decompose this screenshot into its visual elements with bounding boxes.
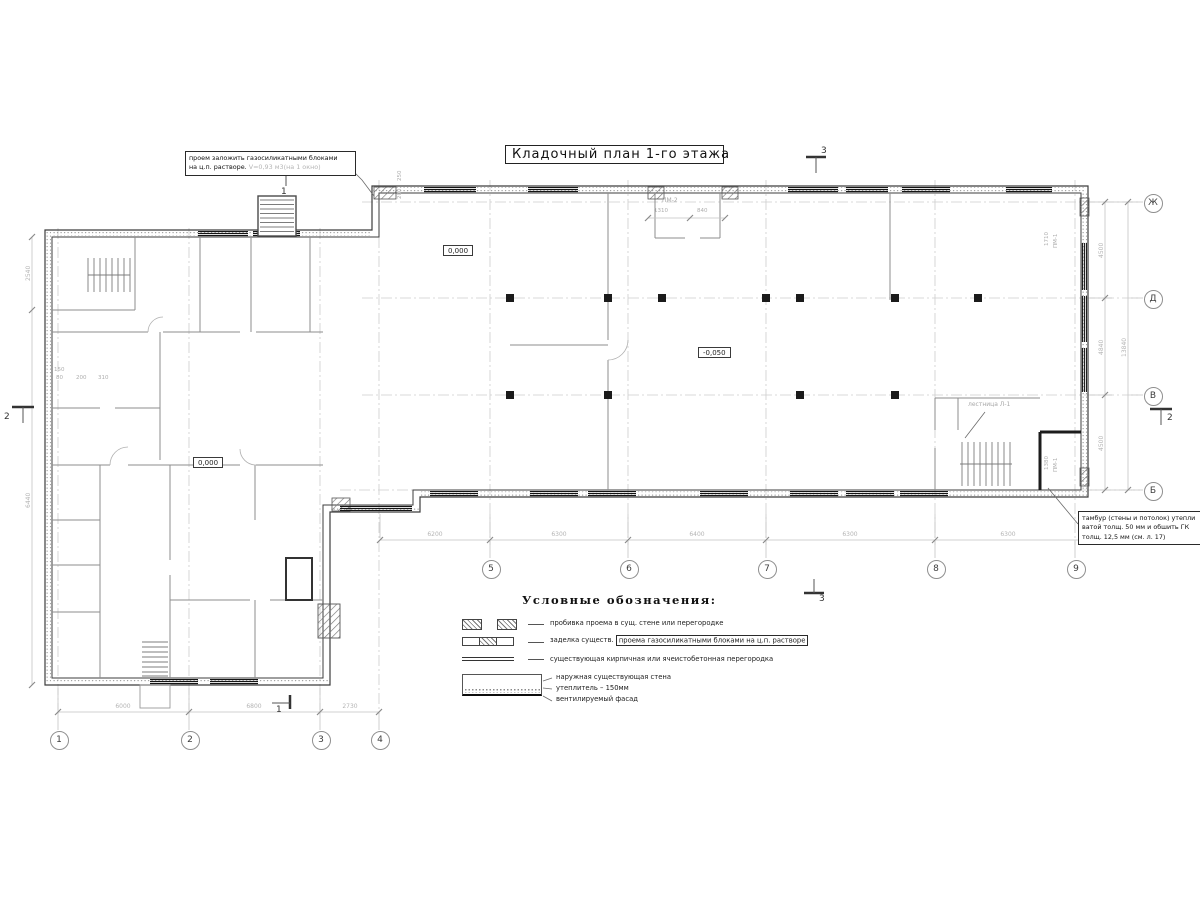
axis-bubble-zh: Ж xyxy=(1144,194,1163,213)
legend-item-2-prefix: заделка существ. xyxy=(550,636,614,644)
elevation-mark-left: 0,000 xyxy=(193,457,223,468)
outer-walls xyxy=(45,186,1088,685)
legend-symbol-infill xyxy=(462,637,514,646)
dim-wall-310: 310 xyxy=(98,375,109,381)
axis-bubble-5: 5 xyxy=(482,560,501,579)
tambour-note-line3: толщ. 12,5 мм (см. л. 17) xyxy=(1082,533,1165,541)
axis-bubble-3: 3 xyxy=(312,731,331,750)
elevation-mark-wing: 0,000 xyxy=(443,245,473,256)
dim-wall-80: 80 xyxy=(56,375,63,381)
pm2-dim2: 840 xyxy=(697,208,708,214)
legend-item-1: пробивка проема в сущ. стене или перегор… xyxy=(550,619,723,627)
insulation-bands xyxy=(47,187,1088,684)
dim-wing-2: 6300 xyxy=(551,531,566,538)
dim-right-2: 4840 xyxy=(1098,340,1105,355)
dim-right-total: 13840 xyxy=(1121,338,1128,357)
legend-symbol-infill-cell xyxy=(497,638,513,645)
legend-wall-callout-3: вентилируемый фасад xyxy=(556,695,638,703)
axis-bubble-4: 4 xyxy=(371,731,390,750)
drawing-title: Кладочный план 1-го этажа xyxy=(505,145,724,164)
dim-wing-1: 6200 xyxy=(427,531,442,538)
legend-symbol-opening-a xyxy=(462,619,482,630)
legend-wall-callout-2: утеплитель – 150мм xyxy=(556,684,629,692)
pm1-top-dim: 1710 xyxy=(1044,232,1050,246)
pm1-bottom-label: ПМ-1 xyxy=(1053,458,1059,472)
dim-bottom-1: 6000 xyxy=(115,703,130,710)
section-3-bottom-label: 3 xyxy=(819,594,825,604)
dim-wing-5: 6300 xyxy=(1000,531,1015,538)
dim-wall-200: 200 xyxy=(76,375,87,381)
floor-plan-drawing: Кладочный план 1-го этажа проем заложить… xyxy=(0,0,1200,900)
elevation-mark-hall: -0,050 xyxy=(698,347,731,358)
legend-dash-3 xyxy=(528,659,544,660)
legend-header: Условные обозначения: xyxy=(522,593,717,607)
dim-wall-150: 150 xyxy=(54,367,65,373)
legend-symbol-partition xyxy=(462,657,514,661)
section-1-top-label: 1 xyxy=(281,187,287,197)
dim-bottom-3: 2730 xyxy=(342,703,357,710)
axis-bubble-2: 2 xyxy=(181,731,200,750)
axis-bubble-v: В xyxy=(1144,387,1163,406)
dim-left-lower: 6440 xyxy=(25,493,32,508)
dim-right-3: 4500 xyxy=(1098,436,1105,451)
axis-bubble-7: 7 xyxy=(758,560,777,579)
dim-top-small-1: 250 xyxy=(397,171,403,182)
legend-symbol-opening-b xyxy=(497,619,517,630)
axis-bubble-8: 8 xyxy=(927,560,946,579)
section-1-bottom-label: 1 xyxy=(276,705,282,715)
dim-left-upper: 2540 xyxy=(25,266,32,281)
legend-item-2-boxed: проема газосиликатными блоками на ц.п. р… xyxy=(616,635,809,646)
dim-wing-3: 6400 xyxy=(689,531,704,538)
tambour-note-line2: ватой толщ. 50 мм и обшить ГК xyxy=(1082,523,1189,531)
legend-wall-callout-1: наружная существующая стена xyxy=(556,673,671,681)
legend-item-3: существующая кирпичная или ячеистобетонн… xyxy=(550,655,773,663)
legend-dash-2 xyxy=(528,642,544,643)
plan-linework xyxy=(0,0,1200,900)
windows xyxy=(150,188,1086,684)
legend-dash-1 xyxy=(528,624,544,625)
door-arcs xyxy=(110,317,628,465)
legend-symbol-insulation-band xyxy=(464,688,540,693)
pm1-bottom-dim: 1380 xyxy=(1044,456,1050,470)
opening-note-line2: на ц.п. растворе. xyxy=(189,163,247,171)
columns xyxy=(506,294,982,399)
stair-label: лестница Л-1 xyxy=(968,401,1010,408)
tambour-note: тамбур (стены и потолок) утепли ватой то… xyxy=(1078,511,1200,545)
opening-note: проем заложить газосиликатными блоками н… xyxy=(185,151,356,176)
opening-note-line1: проем заложить газосиликатными блоками xyxy=(189,154,338,162)
opening-note-detail: V=0,93 м3(на 1 окно) xyxy=(249,163,321,171)
section-2-right-label: 2 xyxy=(1167,413,1173,423)
legend-symbol-infill-hatch xyxy=(480,638,497,645)
dim-right-1: 4500 xyxy=(1098,243,1105,258)
section-3-top-label: 3 xyxy=(821,146,827,156)
axis-bubble-d: Д xyxy=(1144,290,1163,309)
axis-bubble-9: 9 xyxy=(1067,560,1086,579)
legend-item-2: заделка существ. проема газосиликатными … xyxy=(550,636,808,644)
legend-symbol-infill-cell xyxy=(463,638,480,645)
dim-top-small-2: 200 xyxy=(397,189,403,200)
axis-bubble-6: 6 xyxy=(620,560,639,579)
section-2-left-label: 2 xyxy=(4,412,10,422)
axis-bubble-1: 1 xyxy=(50,731,69,750)
pm1-top-label: ПМ-1 xyxy=(1053,234,1059,248)
legend-symbol-wall-section xyxy=(462,674,542,696)
pm2-dim1: 1310 xyxy=(654,208,668,214)
axis-bubble-b: Б xyxy=(1144,482,1163,501)
tambour-note-line1: тамбур (стены и потолок) утепли xyxy=(1082,514,1195,522)
dim-bottom-2: 6800 xyxy=(246,703,261,710)
grid-lines xyxy=(58,180,1140,714)
dim-wing-4: 6300 xyxy=(842,531,857,538)
pm2-label: ПМ-2 xyxy=(662,197,678,204)
